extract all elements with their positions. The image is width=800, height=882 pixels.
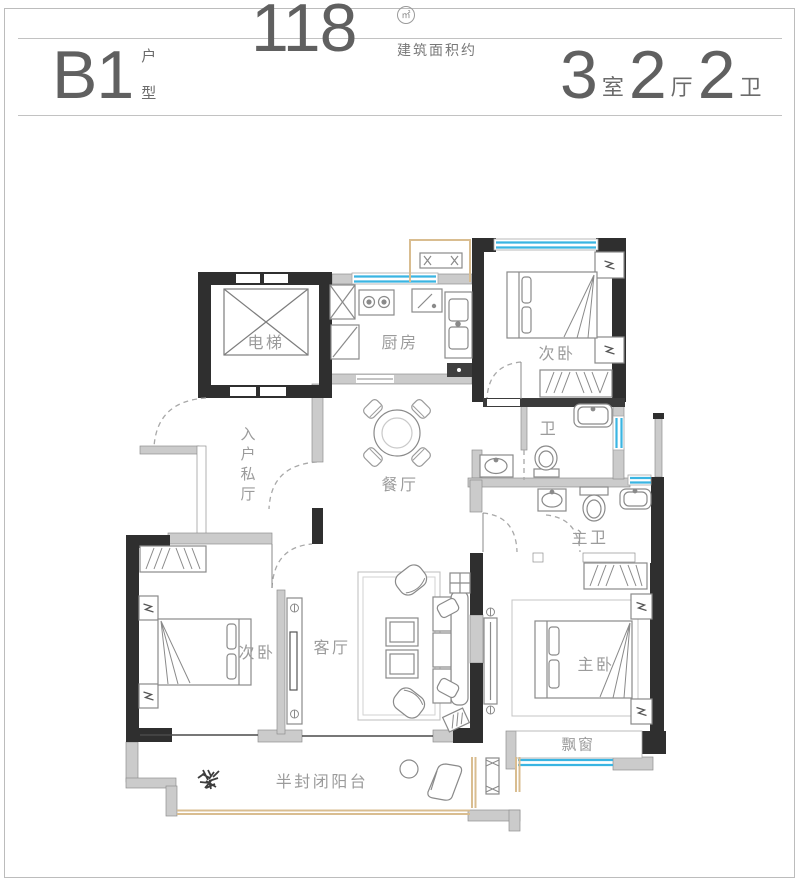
washbasin-icon	[480, 455, 513, 477]
stove-icon	[359, 290, 394, 315]
fridge-icon	[330, 285, 355, 319]
room-label-living: 客厅	[313, 634, 350, 658]
kitchen-counter-icon	[412, 289, 442, 312]
room-label-entry: 入户私厅	[237, 426, 258, 506]
wardrobe-icon	[140, 546, 206, 572]
dishwasher-icon	[447, 363, 472, 377]
room-label-kitchen: 厨房	[381, 329, 418, 353]
room-label-bedroom-top: 次卧	[538, 340, 575, 364]
washbasin-icon	[538, 489, 566, 511]
room-label-bath: 卫	[540, 415, 559, 439]
lounge-chair-icon	[428, 764, 462, 800]
room-label-master-bath: 主卫	[571, 524, 608, 548]
wardrobe-icon	[584, 563, 647, 589]
plant-icon	[198, 770, 219, 789]
bed-icon	[158, 619, 251, 685]
room-label-bedroom-left: 次卧	[238, 639, 275, 663]
ac-unit-icon	[420, 253, 462, 268]
sofa-icon	[433, 591, 468, 705]
ac-unit-icon	[486, 758, 499, 794]
tv-cabinet-icon	[277, 590, 302, 734]
floor-plan	[0, 0, 800, 882]
toilet-icon	[580, 487, 608, 521]
room-label-elevator: 电梯	[247, 329, 284, 353]
dresser-icon	[484, 608, 497, 714]
shower-icon	[620, 489, 651, 509]
toilet-icon	[534, 446, 559, 477]
kitchen-sink-icon	[445, 292, 472, 358]
room-label-dining: 餐厅	[381, 471, 418, 495]
balcony-table-icon	[400, 760, 418, 778]
dining-table-icon	[362, 398, 432, 468]
room-label-bay-window: 飘窗	[561, 734, 594, 755]
kitchen-cabinet-icon	[331, 325, 359, 359]
bed-icon	[507, 272, 597, 338]
room-label-master-bedroom: 主卧	[577, 651, 614, 675]
wardrobe-icon	[540, 370, 612, 397]
side-table-icon	[450, 573, 470, 593]
room-label-balcony: 半封闭阳台	[276, 768, 369, 792]
washbasin-icon	[574, 404, 612, 427]
nightstand-icon	[139, 596, 158, 708]
